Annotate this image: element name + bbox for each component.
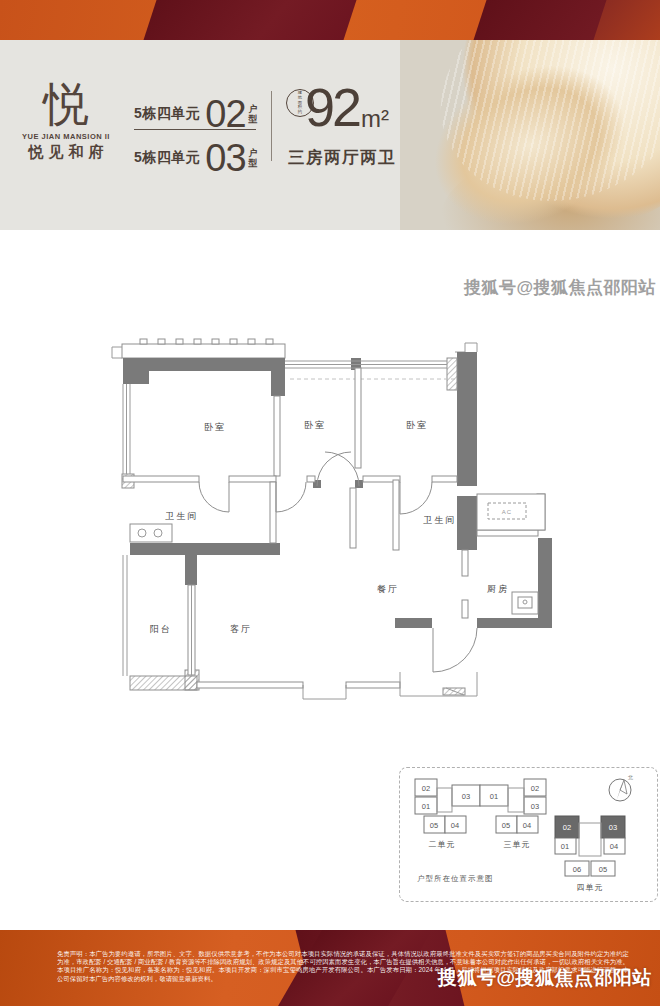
unit3-cell-03: 03 [531,802,539,811]
unit-building-label: 5栋四单元 [134,105,200,123]
vertical-divider [271,91,272,161]
kitchen-sink [512,592,538,614]
unit-list: 5栋四单元 02 户型 5栋四单元 03 户型 [134,40,266,230]
unit2-cell-05: 05 [430,821,438,830]
unit3-cell-01: 01 [490,792,498,801]
unit-suffix: 户型 [249,104,260,124]
room-label-bedroom-1: 卧室 [204,422,226,432]
top-decor-band [0,0,660,40]
location-diagram-svg: 02 01 03 05 04 二单元 01 02 03 05 04 三单元 [400,768,655,899]
area-badge-label: 建筑面积约 [297,91,303,115]
unit4-cell-02: 02 [563,823,571,832]
unit-building-label: 5栋四单元 [134,149,200,167]
building-unit3: 01 02 03 05 04 三单元 [480,779,546,849]
unit-divider-line [134,129,256,130]
building-unit4: 02 03 01 04 06 05 四单元 [555,816,625,892]
layout-spec: 三房两厅两卫 [288,147,396,169]
watermark-mid: 搜狐号@搜狐焦点邵阳站 [464,276,656,299]
compass-icon: 北 [609,774,633,801]
unit2-cell-04: 04 [451,821,459,830]
unit2-cell-03: 03 [462,792,470,801]
location-diagram: 02 01 03 05 04 二单元 01 02 03 05 04 三单元 [399,767,658,902]
area-value: 92 m² [305,84,389,130]
compass-north-label: 北 [628,774,633,781]
unit3-cell-02: 02 [531,784,539,793]
room-label-bathroom-1: 卫生间 [165,511,199,521]
ac-label: AC [502,509,512,515]
room-label-balcony: 阳台 [150,624,172,634]
balcony-parapet [112,339,477,358]
unit2-cell-01: 01 [422,802,430,811]
room-label-bedroom-3: 卧室 [406,420,428,430]
location-caption: 户型所在位置示意图 [417,874,494,883]
unit3-label: 三单元 [504,840,531,849]
area-block: 建筑面积约 92 m² 三房两厅两卫 [284,40,400,230]
logo-chinese-name: 悦见和府 [18,143,114,162]
area-unit: m² [361,108,389,130]
ac-platform: AC [477,494,545,530]
unit2-cell-02: 02 [422,784,430,793]
logo-english-name: YUE JIAN MANSION II [18,132,114,141]
unit4-label: 四单元 [577,883,604,892]
bathroom-counter [130,524,172,542]
unit4-cell-05: 05 [599,865,607,874]
unit-suffix: 户型 [249,148,260,168]
brand-logo: 悦 YUE JIAN MANSION II 悦见和府 [18,80,114,162]
unit-number: 03 [205,139,245,177]
unit3-cell-04: 04 [523,821,531,830]
unit3-cell-05: 05 [502,821,510,830]
room-label-bedroom-2: 卧室 [304,420,326,430]
room-label-dining: 餐厅 [377,584,399,594]
header: 悦 YUE JIAN MANSION II 悦见和府 5栋四单元 02 户型 5… [0,40,660,230]
flower-image [400,40,660,230]
ad-page: 悦 YUE JIAN MANSION II 悦见和府 5栋四单元 02 户型 5… [0,0,660,1006]
unit-row-03: 5栋四单元 03 户型 [134,138,260,178]
watermark-bottom: 搜狐号@搜狐焦点邵阳站 [438,965,652,991]
unit-number: 02 [205,95,245,133]
header-info-panel: 悦 YUE JIAN MANSION II 悦见和府 5栋四单元 02 户型 5… [0,40,400,230]
room-label-kitchen: 厨房 [487,584,509,594]
unit2-label: 二单元 [429,840,456,849]
door-arcs [199,452,477,672]
floorplan-drawing: AC 卧室 卧室 卧室 卫生间 卫生间 餐厅 厨房 客厅 阳台 [110,338,565,763]
unit4-cell-01: 01 [561,842,569,851]
top-band-maroon-shape [140,0,359,40]
room-label-bathroom-2: 卫生间 [423,515,457,525]
room-label-living: 客厅 [230,624,252,634]
logo-glyph: 悦 [18,80,114,128]
area-number: 92 [305,84,359,130]
unit4-cell-04: 04 [610,842,618,851]
unit-row-02: 5栋四单元 02 户型 [134,94,260,134]
building-unit2: 02 01 03 05 04 二单元 [415,779,480,849]
unit4-cell-06: 06 [573,865,581,874]
unit4-cell-03: 03 [609,823,617,832]
